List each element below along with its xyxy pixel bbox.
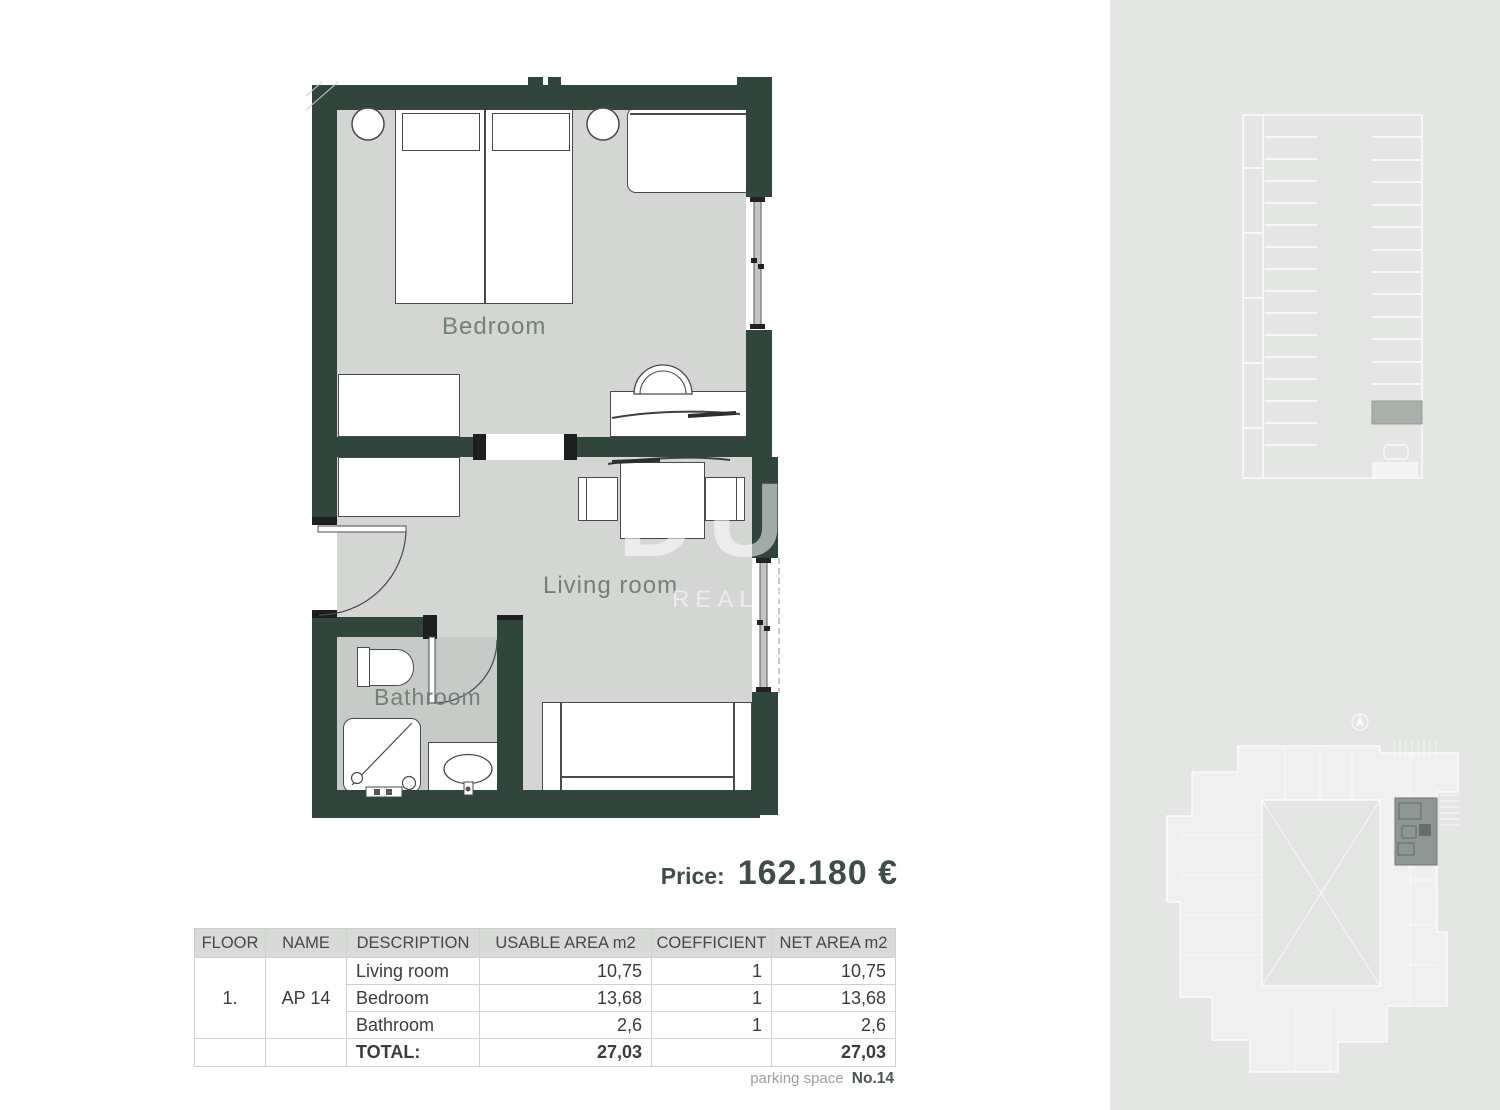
bedroom-label: Bedroom — [442, 313, 546, 341]
table-row-description: Bedroom — [347, 985, 480, 1012]
wall-end-cap — [423, 615, 437, 639]
wall-end-cap — [473, 434, 486, 460]
table-row-coefficient: 1 — [652, 958, 772, 985]
total-net: 27,03 — [772, 1039, 896, 1067]
sofa-armrest-line — [733, 703, 735, 792]
table-row-coefficient: 1 — [652, 1012, 772, 1039]
wall-segment — [548, 77, 561, 85]
wall-segment — [312, 85, 337, 525]
total-usable: 27,03 — [480, 1039, 652, 1067]
watermark-logo: DUX — [618, 468, 908, 573]
living-closet — [338, 457, 460, 517]
bathroom-label: Bathroom — [374, 684, 482, 711]
wall-segment — [746, 85, 772, 197]
column-header-usable-area: USABLE AREA m2 — [480, 929, 652, 958]
watermark-subtitle: REAL ESTATE — [672, 586, 896, 614]
wall-segment — [528, 77, 543, 85]
wall-end-cap — [312, 517, 337, 525]
parking-space-note: parking space No.14 — [594, 1070, 894, 1088]
table-row-coefficient: 1 — [652, 985, 772, 1012]
wall-segment — [577, 437, 752, 457]
toilet-bowl — [369, 649, 414, 686]
table-row-usable: 2,6 — [480, 1012, 652, 1039]
wall-segment — [752, 692, 778, 815]
area-table: FLOOR NAME DESCRIPTION USABLE AREA m2 CO… — [194, 928, 896, 1067]
total-row-empty — [195, 1039, 266, 1067]
table-row-net: 13,68 — [772, 985, 896, 1012]
bedroom-dresser — [338, 374, 460, 437]
column-header-description: DESCRIPTION — [347, 929, 480, 958]
name-cell: AP 14 — [266, 958, 347, 1039]
bed-pillow — [402, 113, 480, 151]
shower-tray — [343, 718, 421, 793]
column-header-name: NAME — [266, 929, 347, 958]
column-header-net-area: NET AREA m2 — [772, 929, 896, 958]
sofa-seat-line — [561, 776, 734, 778]
living-sofa-bed — [542, 702, 752, 794]
floor-cell: 1. — [195, 958, 266, 1039]
table-row-net: 10,75 — [772, 958, 896, 985]
bedroom-window — [746, 197, 772, 330]
wall-end-cap — [312, 610, 337, 618]
wall-segment — [312, 790, 760, 818]
table-row-usable: 10,75 — [480, 958, 652, 985]
table-row-net: 2,6 — [772, 1012, 896, 1039]
chair-arm-line — [586, 478, 587, 520]
price-value: 162.180 € — [738, 854, 898, 893]
bed-pillow — [492, 113, 570, 151]
total-label: TOTAL: — [347, 1039, 480, 1067]
price-row: Price: 162.180 € — [620, 854, 898, 893]
wall-segment — [337, 617, 428, 637]
total-row-empty — [266, 1039, 347, 1067]
table-row-usable: 13,68 — [480, 985, 652, 1012]
side-panel — [1110, 0, 1500, 1110]
bedroom-sofa — [627, 107, 753, 193]
wall-segment — [315, 437, 473, 457]
sofa-armrest-line — [560, 703, 562, 792]
doorway-threshold — [486, 434, 564, 460]
wall-segment — [312, 85, 772, 110]
bedroom-desk — [610, 391, 752, 437]
sofa-back-line — [630, 113, 750, 115]
price-label: Price: — [661, 863, 725, 890]
table-row-description: Living room — [347, 958, 480, 985]
bed-divider-line — [484, 108, 486, 303]
floorplan-page: Bedroom Living room Bathroom DUX REAL ES… — [0, 0, 1500, 1110]
wall-end-cap — [564, 434, 577, 460]
parking-space-label: parking space — [750, 1070, 843, 1087]
dining-chair-left — [578, 477, 618, 521]
wall-segment — [312, 618, 337, 818]
total-row-empty — [652, 1039, 772, 1067]
table-row-description: Bathroom — [347, 1012, 480, 1039]
parking-space-number: No.14 — [852, 1070, 894, 1087]
column-header-coefficient: COEFFICIENT — [652, 929, 772, 958]
wall-segment — [737, 77, 772, 85]
wall-segment — [497, 620, 523, 792]
column-header-floor: FLOOR — [195, 929, 266, 958]
